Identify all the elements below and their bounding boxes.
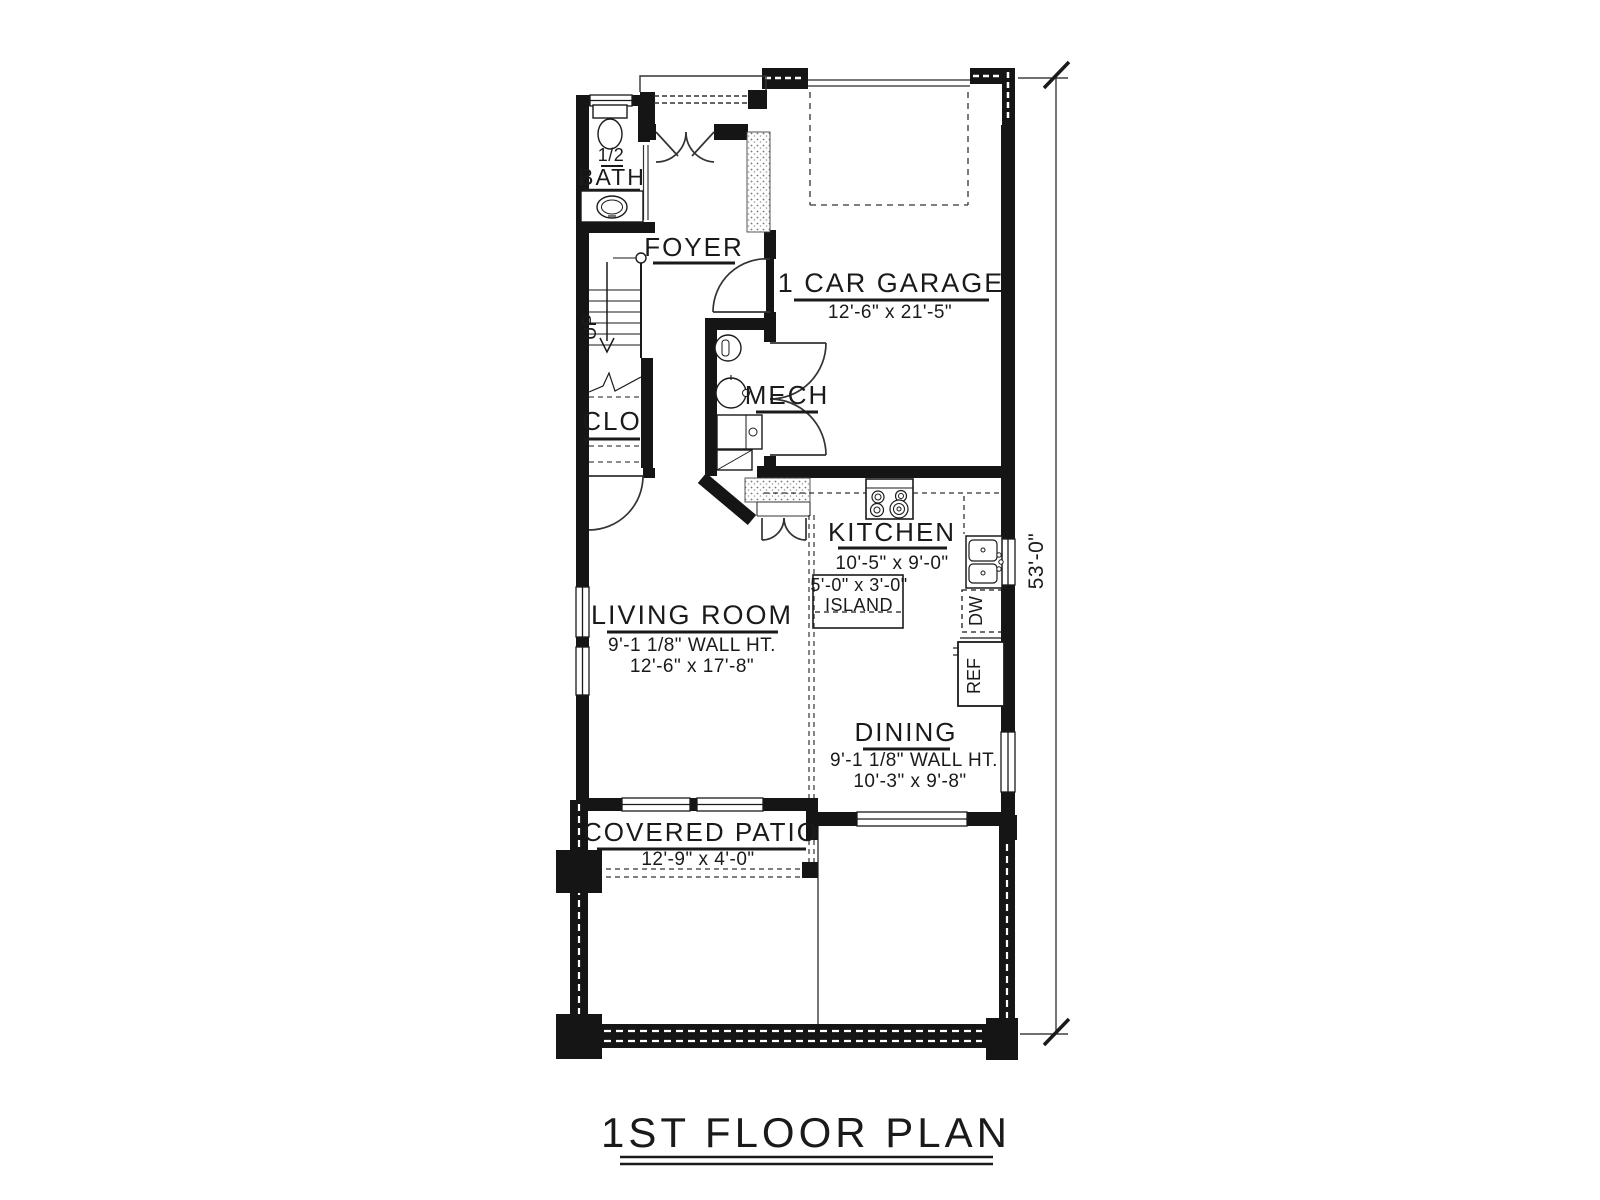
sink-faucet (997, 553, 1001, 557)
stove-burner-inner (875, 494, 881, 500)
bath-label-half: 1/2 (598, 145, 625, 165)
wall-mech-left (705, 318, 717, 476)
stair-break-line (589, 373, 641, 392)
garage-label: 1 CAR GARAGE (778, 268, 1005, 298)
sink-faucet (999, 560, 1003, 564)
dining-wall-height: 9'-1 1/8" WALL HT. (830, 750, 998, 771)
deck-post-bottom-left (556, 1014, 602, 1059)
stove-burner-inner (874, 507, 880, 513)
patio-post-small (802, 862, 818, 878)
stairs-up-label: UP (580, 314, 601, 340)
floor-plan-drawing: 1/2 BATH FOYER 1 CAR GARAGE 12'-6" x 21'… (0, 0, 1600, 1200)
garage-dims: 12'-6" x 21'-5" (828, 302, 952, 323)
deck-post-bottom-right (986, 1018, 1018, 1060)
closet-door (589, 476, 643, 530)
patio-dims: 12'-9" x 4'-0" (641, 849, 754, 870)
living-dims: 12'-6" x 17'-8" (630, 656, 754, 677)
stipple-wall-pantry (745, 478, 810, 502)
stove-burner-inner (899, 494, 904, 499)
pantry-double-doors (757, 502, 810, 540)
wall-front-right (714, 124, 748, 140)
overall-dimension-label: 53'-0" (1025, 533, 1048, 590)
island-dims: 5'-0" x 3'-0" (810, 575, 907, 595)
island-label: ISLAND (825, 595, 893, 615)
mech-label: MECH (745, 380, 830, 410)
sink-faucet (997, 567, 1001, 571)
dining-dims: 10'-3" x 9'-8" (853, 771, 966, 792)
bath-label: BATH (578, 164, 646, 190)
wall-right-lower (1001, 792, 1015, 817)
wall-living-south (576, 798, 815, 811)
vanity-sink-inner (602, 200, 623, 214)
living-label: LIVING ROOM (591, 600, 793, 630)
stipple-wall-entry (747, 132, 770, 232)
refrigerator-label: REF (964, 658, 984, 694)
porch-outline (640, 76, 766, 92)
wall-closet-jamb-right (643, 468, 655, 478)
deck-rail-bottom (600, 1024, 986, 1048)
wall-mech-diagonal (702, 478, 752, 520)
living-wall-height: 9'-1 1/8" WALL HT. (608, 635, 776, 656)
window-dining-south (857, 812, 967, 826)
wall-closet-jamb-left (576, 468, 589, 478)
window-living-west-1 (576, 587, 589, 637)
foyer-garage-door (713, 259, 770, 312)
garage-door (808, 80, 970, 205)
patio-label: COVERED PATIO (583, 817, 819, 847)
garage-door-leaf-bar (766, 259, 774, 312)
sheet-title: 1ST FLOOR PLAN (601, 1109, 1011, 1156)
foyer-label: FOYER (644, 232, 744, 262)
garage-front-posts (762, 68, 1015, 126)
wall-stair-right (641, 358, 653, 468)
sink-drain (981, 571, 985, 575)
wall-garage-left-a (764, 230, 776, 259)
dishwasher-label: DW (966, 596, 986, 626)
mech-tank-core (722, 340, 729, 356)
water-heater (716, 378, 746, 408)
furnace-dial (749, 428, 757, 436)
window-dining-east (1001, 732, 1015, 792)
front-entry-door (656, 132, 714, 162)
dining-label: DINING (855, 717, 958, 747)
window-living-west-2 (576, 647, 589, 695)
wall-garage-bottom (757, 466, 1002, 478)
toilet-tank (593, 105, 627, 118)
window-living-south-1 (622, 798, 690, 811)
closet-label: CLO (582, 406, 641, 436)
window-living-south-2 (697, 798, 763, 811)
deck-post-mid-left (556, 850, 602, 893)
entry-porch (640, 76, 766, 103)
porch-post-left (640, 92, 655, 125)
floor-plan-sheet: 1/2 BATH FOYER 1 CAR GARAGE 12'-6" x 21'… (0, 0, 1600, 1200)
sink-drain (981, 548, 985, 552)
kitchen-label: KITCHEN (828, 517, 956, 547)
wall-right-upper (1001, 125, 1015, 539)
wall-front-left (638, 124, 656, 140)
kitchen-dims: 10'-5" x 9'-0" (835, 553, 948, 574)
porch-post-right (748, 90, 767, 109)
stove-burner-inner (897, 507, 901, 511)
